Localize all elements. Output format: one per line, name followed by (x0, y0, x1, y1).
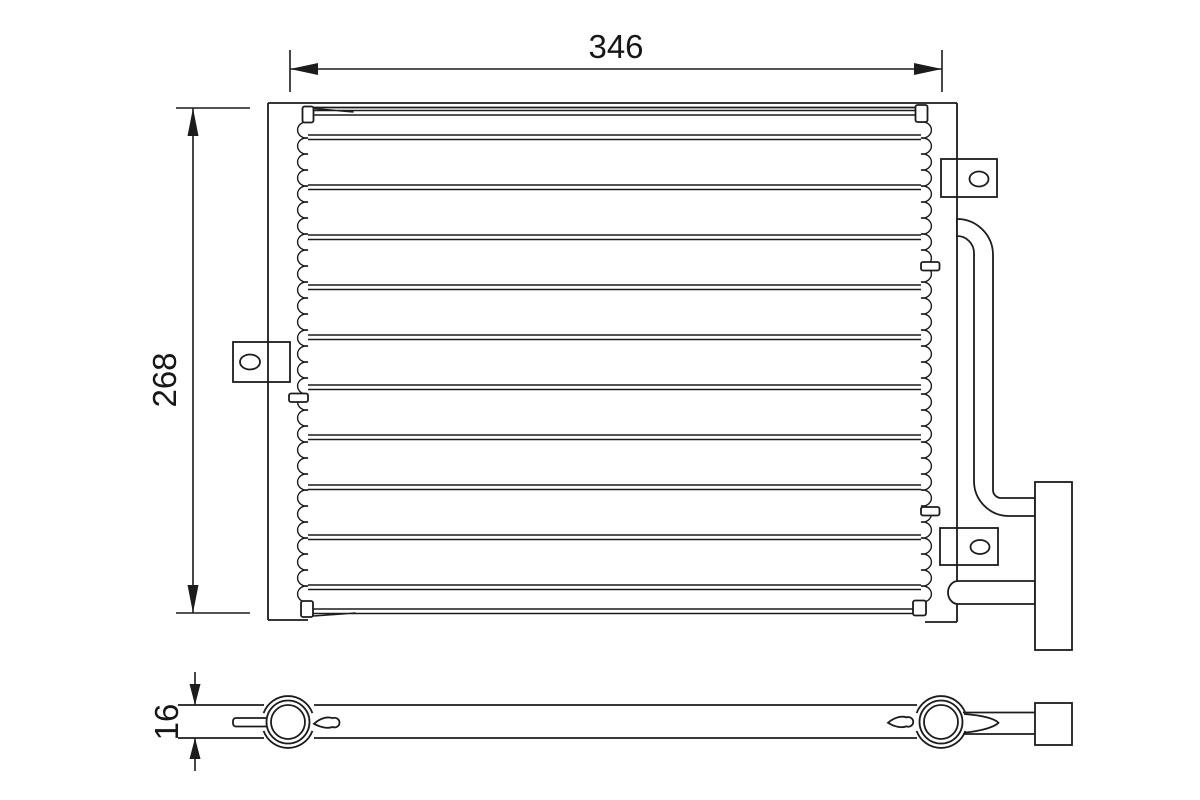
fitting-right (917, 696, 966, 748)
thickness-dimension-label: 16 (148, 704, 185, 741)
pipe-upper (957, 219, 1035, 516)
mounting-tabs (289, 262, 940, 516)
thickness-dimension: 16 (148, 672, 201, 771)
condenser-technical-drawing: 346 268 16 (0, 0, 1200, 800)
technical-drawing-page: 346 268 16 (0, 0, 1200, 800)
mounting-bracket-bottom-right (940, 528, 998, 565)
pipe-lower (948, 581, 1035, 604)
mounting-bracket-top-right (941, 159, 997, 197)
fitting-left (233, 696, 312, 748)
connector-block (1035, 482, 1072, 650)
width-dimension: 346 (290, 28, 942, 92)
fin-edge-right (921, 122, 931, 602)
fin-edge-left (298, 122, 308, 602)
side-view (178, 696, 1072, 748)
mounting-bracket-left (233, 342, 290, 382)
header-plates (268, 103, 957, 622)
connector-block-side (1035, 703, 1072, 745)
height-dimension-label: 268 (146, 352, 183, 407)
core-tubes (308, 109, 921, 617)
outlet-stub (963, 713, 1035, 735)
front-view (233, 103, 1072, 650)
corner-clips (301, 105, 928, 617)
width-dimension-label: 346 (588, 28, 643, 65)
flow-marker-left (314, 717, 339, 727)
flow-marker-right (888, 717, 913, 727)
